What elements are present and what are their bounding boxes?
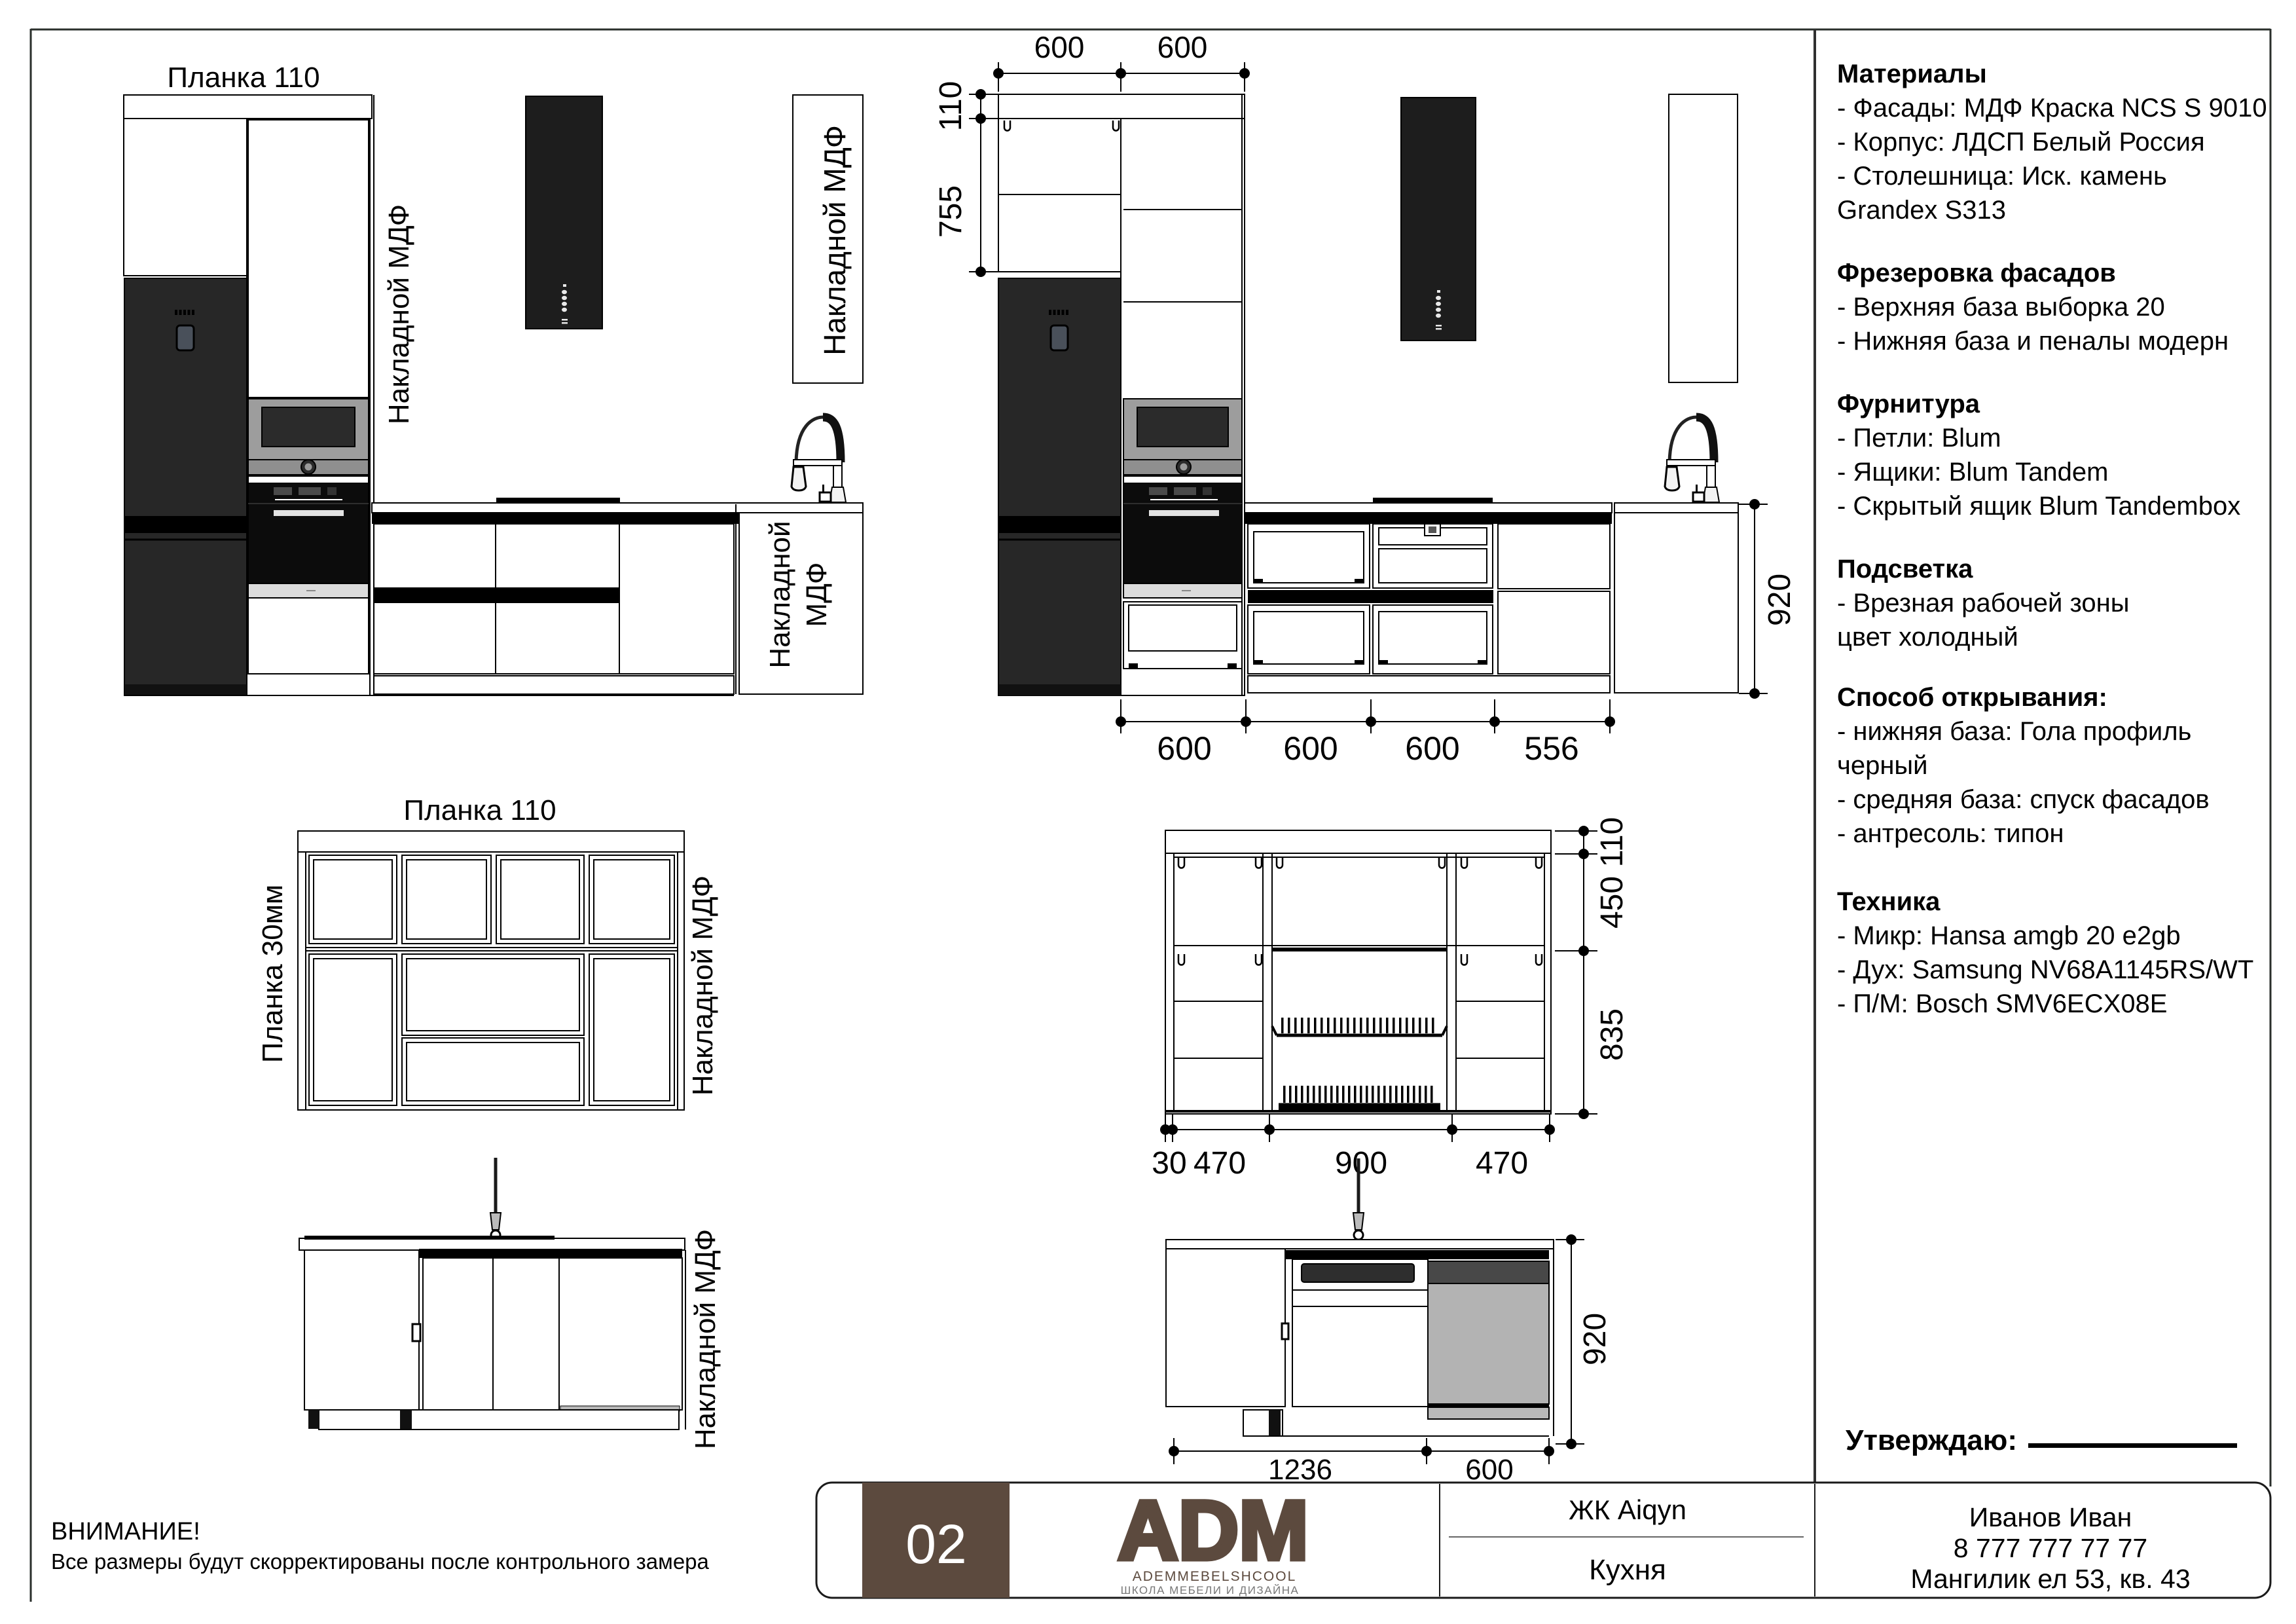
svg-text:Накладной МДФ: Накладной МДФ (383, 204, 415, 424)
svg-text:Иванов Иван: Иванов Иван (1969, 1502, 2132, 1532)
svg-text:Накладной МДФ: Накладной МДФ (818, 125, 852, 356)
svg-text:556: 556 (1524, 730, 1578, 767)
svg-text:Кухня: Кухня (1589, 1554, 1666, 1586)
svg-text:- нижняя база: Гола профиль: - нижняя база: Гола профиль (1837, 717, 2191, 746)
svg-text:450: 450 (1595, 876, 1630, 929)
svg-text:ADEMMEBELSHCOOL: ADEMMEBELSHCOOL (1133, 1569, 1297, 1584)
svg-text:Накладной: Накладной (764, 521, 796, 668)
svg-text:Техника: Техника (1837, 887, 1941, 916)
svg-text:- Верхняя база выборка 20: - Верхняя база выборка 20 (1837, 293, 2165, 322)
svg-text:600: 600 (1283, 730, 1338, 767)
svg-text:- Микр: Hansa amgb 20 e2gb: - Микр: Hansa amgb 20 e2gb (1837, 921, 2181, 950)
svg-text:- Скрытый ящик Blum Tandembox: - Скрытый ящик Blum Tandembox (1837, 492, 2240, 521)
svg-text:600: 600 (1465, 1454, 1513, 1486)
svg-text:Накладной МДФ: Накладной МДФ (687, 876, 719, 1096)
svg-text:- Петли: Blum: - Петли: Blum (1837, 424, 2001, 452)
svg-text:- антресоль: типон: - антресоль: типон (1837, 819, 2064, 848)
svg-text:черный: черный (1837, 751, 1928, 780)
svg-text:Утверждаю:: Утверждаю: (1846, 1424, 2017, 1456)
svg-text:ЖК Aiqyn: ЖК Aiqyn (1569, 1494, 1686, 1525)
svg-text:110: 110 (1595, 817, 1630, 868)
svg-text:920: 920 (1762, 574, 1797, 626)
svg-text:Планка 110: Планка 110 (403, 794, 556, 826)
svg-text:- Фасады: МДФ Краска NCS S 901: - Фасады: МДФ Краска NCS S 9010 (1837, 94, 2267, 122)
svg-text:Все размеры будут скорректиров: Все размеры будут скорректированы после … (51, 1549, 710, 1574)
svg-text:Способ открывания:: Способ открывания: (1837, 683, 2107, 712)
svg-text:600: 600 (1157, 30, 1208, 64)
svg-text:600: 600 (1157, 730, 1211, 767)
svg-text:900: 900 (1335, 1146, 1387, 1181)
svg-text:755: 755 (934, 185, 968, 238)
svg-text:835: 835 (1595, 1008, 1630, 1061)
svg-text:МДФ: МДФ (801, 563, 833, 627)
svg-text:600: 600 (1405, 730, 1459, 767)
svg-text:Материалы: Материалы (1837, 60, 1987, 88)
svg-text:Фрезеровка фасадов: Фрезеровка фасадов (1837, 259, 2116, 287)
svg-text:ШКОЛА МЕБЕЛИ И ДИЗАЙНА: ШКОЛА МЕБЕЛИ И ДИЗАЙНА (1121, 1584, 1300, 1596)
svg-text:ADM: ADM (1118, 1484, 1309, 1578)
svg-text:- Корпус: ЛДСП Белый Россия: - Корпус: ЛДСП Белый Россия (1837, 128, 2205, 157)
svg-text:8 777 777 77 77: 8 777 777 77 77 (1954, 1533, 2147, 1563)
svg-text:600: 600 (1034, 30, 1085, 64)
svg-text:- Врезная рабочей зоны: - Врезная рабочей зоны (1837, 589, 2129, 618)
svg-text:1236: 1236 (1268, 1454, 1332, 1486)
svg-text:- Дух: Samsung NV68A1145RS/WT: - Дух: Samsung NV68A1145RS/WT (1837, 955, 2253, 984)
svg-text:цвет холодный: цвет холодный (1837, 623, 2018, 652)
svg-text:- П/М: Bosch SMV6ECX08E: - П/М: Bosch SMV6ECX08E (1837, 989, 2167, 1018)
svg-text:Мангилик ел 53, кв. 43: Мангилик ел 53, кв. 43 (1910, 1564, 2190, 1594)
svg-text:470: 470 (1476, 1146, 1528, 1181)
svg-text:110: 110 (934, 81, 968, 132)
svg-text:Планка 110: Планка 110 (167, 62, 319, 94)
svg-text:920: 920 (1578, 1313, 1613, 1365)
svg-text:Подсветка: Подсветка (1837, 555, 1973, 583)
svg-text:- средняя база: спуск фасадов: - средняя база: спуск фасадов (1837, 785, 2210, 814)
svg-text:Фурнитура: Фурнитура (1837, 390, 1980, 418)
svg-text:- Ящики: Blum Tandem: - Ящики: Blum Tandem (1837, 458, 2108, 487)
svg-text:02: 02 (905, 1513, 966, 1575)
svg-text:30: 30 (1152, 1146, 1186, 1181)
svg-text:Grandex S313: Grandex S313 (1837, 196, 2006, 225)
svg-text:470: 470 (1194, 1146, 1246, 1181)
svg-text:- Нижняя база и пеналы модерн: - Нижняя база и пеналы модерн (1837, 327, 2229, 356)
svg-text:Планка 30мм: Планка 30мм (257, 885, 289, 1063)
svg-text:ВНИМАНИЕ!: ВНИМАНИЕ! (51, 1518, 200, 1545)
svg-text:Накладной МДФ: Накладной МДФ (689, 1229, 721, 1449)
svg-text:- Столешница: Иск. камень: - Столешница: Иск. камень (1837, 162, 2167, 191)
